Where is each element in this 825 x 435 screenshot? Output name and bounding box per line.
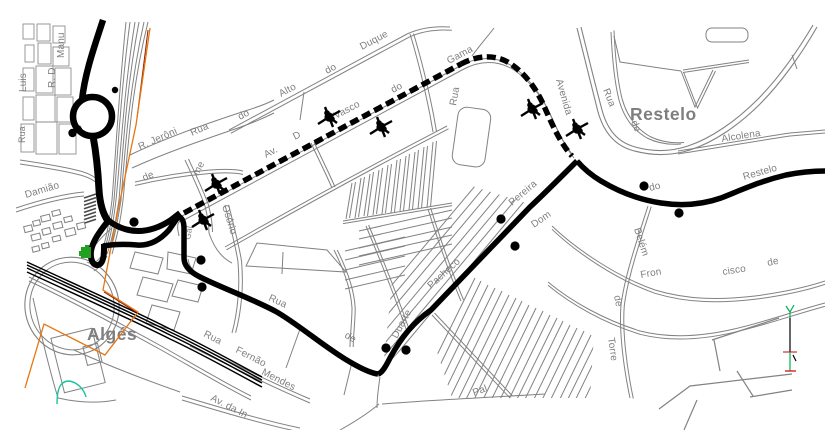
svg-text:R. D: R. D bbox=[47, 67, 58, 88]
svg-text:Algés: Algés bbox=[87, 324, 137, 344]
svg-text:Rua: Rua bbox=[17, 126, 27, 143]
svg-text:Manu: Manu bbox=[56, 32, 67, 58]
svg-text:Luis: Luis bbox=[18, 73, 29, 92]
svg-text:Restelo: Restelo bbox=[630, 104, 697, 124]
